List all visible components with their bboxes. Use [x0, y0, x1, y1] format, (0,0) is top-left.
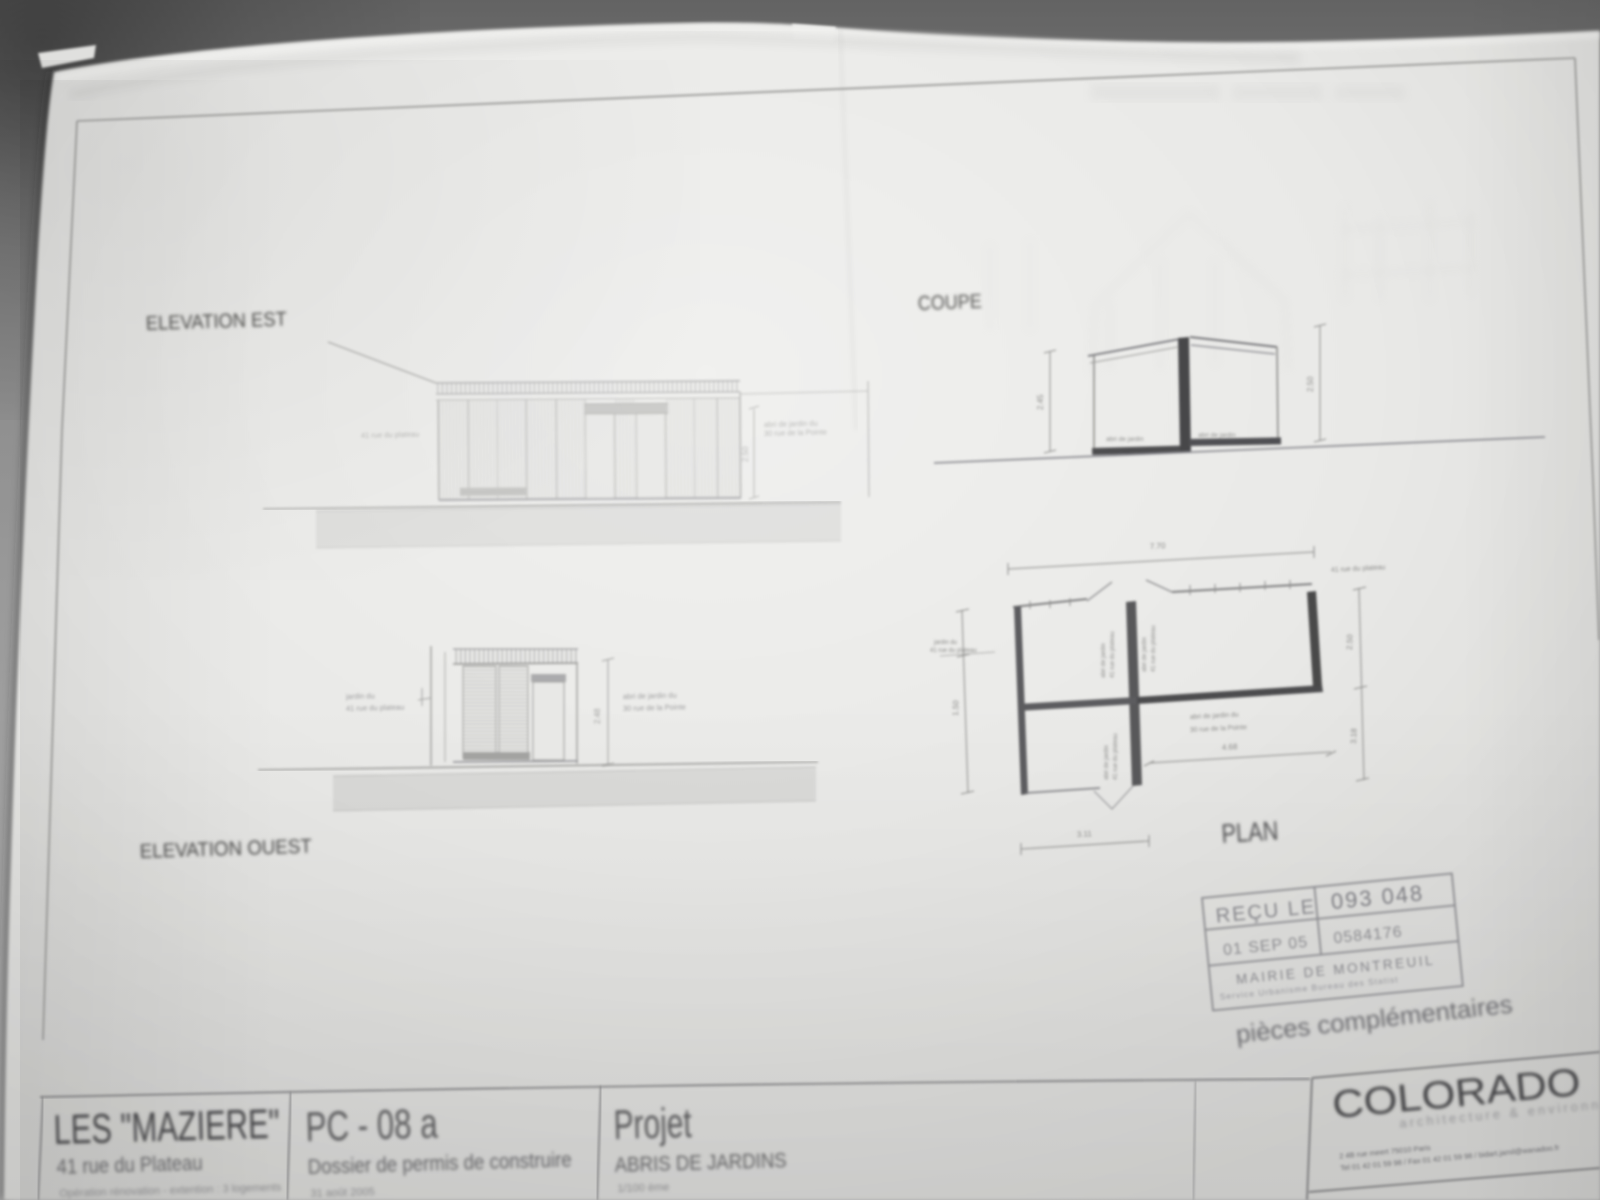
svg-text:ABRIS DE JARDINS: ABRIS DE JARDINS	[614, 1149, 787, 1177]
svg-text:jardin du: jardin du	[933, 640, 957, 646]
svg-text:2.45: 2.45	[1036, 394, 1045, 410]
svg-text:PC - 08 a: PC - 08 a	[305, 1099, 439, 1150]
svg-text:2.48: 2.48	[593, 708, 602, 724]
svg-text:1.50: 1.50	[951, 700, 961, 716]
svg-text:2.50: 2.50	[741, 446, 750, 462]
svg-text:LES "MAZIERE": LES "MAZIERE"	[53, 1100, 280, 1153]
svg-text:jardin du: jardin du	[345, 691, 375, 701]
svg-text:41 rue du plateau: 41 rue du plateau	[1113, 733, 1119, 780]
svg-text:abri de jardin du: abri de jardin du	[623, 691, 677, 701]
svg-text:41 rue du plateau: 41 rue du plateau	[346, 702, 405, 713]
svg-text:abri de jardin: abri de jardin	[1104, 745, 1110, 780]
svg-text:31 août 2005: 31 août 2005	[310, 1186, 375, 1200]
svg-text:ELEVATION EST: ELEVATION EST	[145, 309, 287, 335]
svg-text:30 rue de la Pointe: 30 rue de la Pointe	[623, 702, 686, 713]
svg-text:abri de jardin: abri de jardin	[1198, 432, 1236, 439]
svg-text:Projet: Projet	[613, 1099, 693, 1148]
svg-text:41 rue du plateau: 41 rue du plateau	[361, 429, 420, 440]
svg-text:7.70: 7.70	[1150, 541, 1167, 551]
svg-text:41 rue du plateau: 41 rue du plateau	[1151, 625, 1157, 672]
svg-text:41 rue du plateau: 41 rue du plateau	[1110, 631, 1116, 678]
svg-text:30 rue de la Pointe: 30 rue de la Pointe	[764, 427, 827, 438]
svg-text:3.11: 3.11	[1077, 829, 1093, 839]
svg-text:41 rue du Plateau: 41 rue du Plateau	[56, 1152, 203, 1179]
svg-text:COUPE: COUPE	[917, 291, 982, 315]
svg-text:4.68: 4.68	[1222, 742, 1239, 752]
svg-text:1/100 ème: 1/100 ème	[617, 1181, 669, 1194]
svg-text:abri de jardin: abri de jardin	[1142, 637, 1148, 672]
svg-text:41 rue du plateau: 41 rue du plateau	[930, 648, 977, 654]
svg-text:2.50: 2.50	[1345, 634, 1355, 650]
svg-text:PLAN: PLAN	[1221, 816, 1280, 849]
svg-text:2.50: 2.50	[1306, 376, 1315, 392]
svg-text:abri de jardin: abri de jardin	[1101, 643, 1107, 678]
svg-text:abri de jardin: abri de jardin	[1106, 436, 1144, 443]
svg-text:3.18: 3.18	[1349, 728, 1359, 744]
